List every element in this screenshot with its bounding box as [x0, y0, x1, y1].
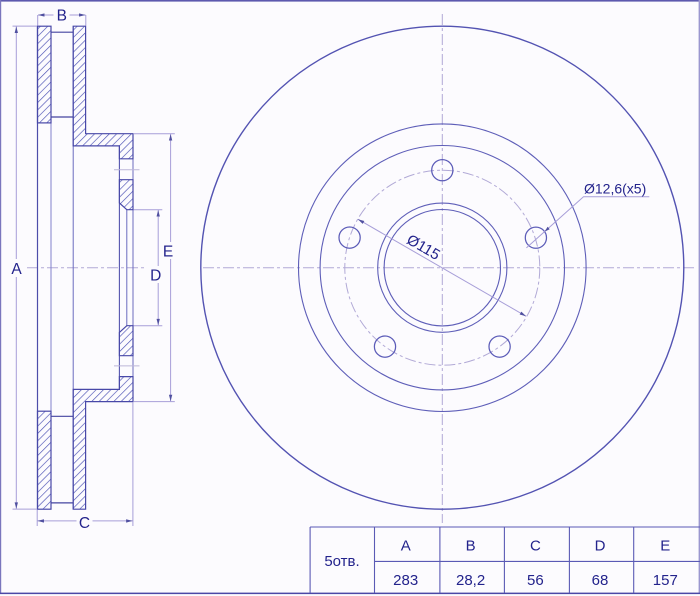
svg-text:283: 283 — [393, 572, 418, 589]
svg-text:E: E — [163, 244, 173, 261]
svg-text:5отв.: 5отв. — [324, 553, 359, 570]
svg-text:B: B — [57, 8, 67, 25]
svg-text:D: D — [595, 537, 606, 554]
svg-text:D: D — [150, 268, 161, 285]
svg-text:C: C — [530, 537, 541, 554]
svg-text:C: C — [79, 515, 90, 532]
svg-text:A: A — [11, 261, 22, 278]
svg-text:28,2: 28,2 — [456, 572, 485, 589]
svg-text:56: 56 — [527, 572, 544, 589]
svg-text:157: 157 — [653, 572, 678, 589]
svg-text:68: 68 — [592, 572, 609, 589]
svg-text:A: A — [401, 537, 411, 554]
svg-text:Ø12,6(x5): Ø12,6(x5) — [584, 181, 646, 197]
svg-text:B: B — [466, 537, 476, 554]
svg-text:E: E — [660, 537, 670, 554]
